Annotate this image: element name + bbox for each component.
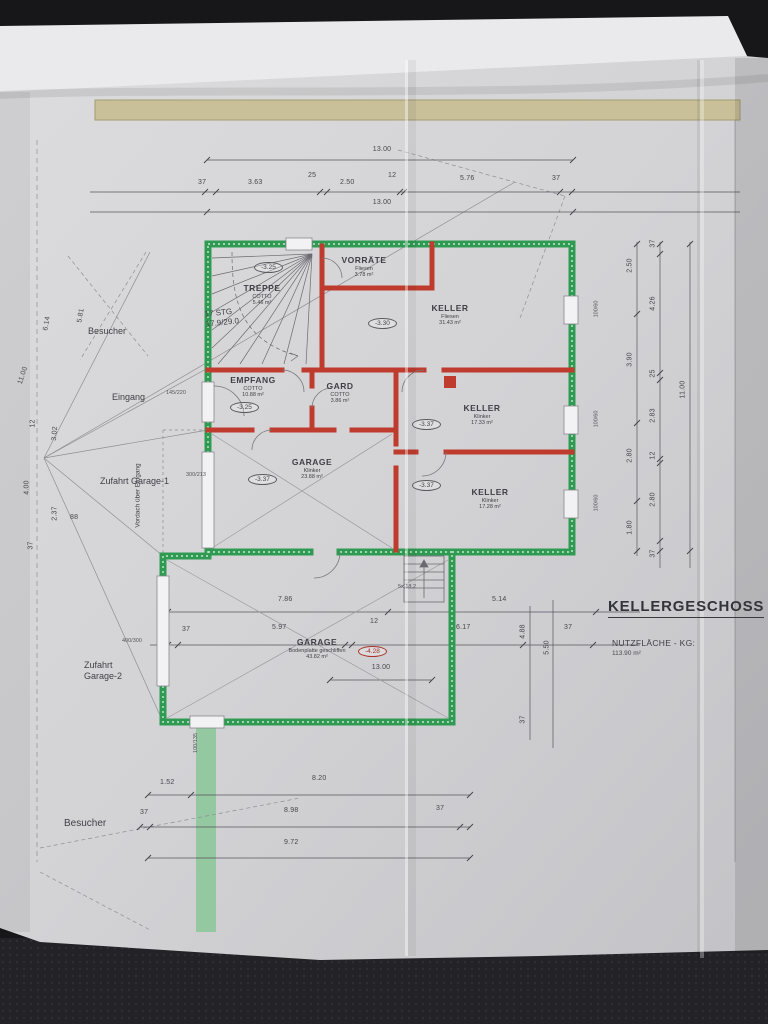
drawing-title: KELLERGESCHOSS	[608, 598, 764, 618]
dim-right-chain: 2.83	[650, 399, 657, 433]
dim-right-inner: 2.80	[627, 439, 634, 473]
level-badge: -3.30	[368, 318, 397, 329]
dim-right-chain: 37	[650, 227, 657, 261]
dim-left-chain: 2.37	[52, 497, 59, 531]
room-gard: GARD COTTO 3.86 m²	[305, 382, 375, 404]
room-vorraete: VORRÄTE Fliesen 3.78 m²	[324, 256, 404, 278]
exterior-steps-note: 5x 18.2	[398, 584, 416, 590]
footpath-strip	[196, 726, 216, 932]
dim-garage-upper: 7.86	[278, 596, 292, 603]
dim-right-chain: 37	[650, 537, 657, 571]
site-label-eingang: Eingang	[112, 392, 145, 402]
room-garage-lower: GARAGE Bodenplatte geschliffen 43.82 m²	[262, 638, 372, 660]
dim-right-inner: 3.90	[627, 343, 634, 377]
usable-area-value: 113.90 m²	[612, 650, 641, 657]
dim-top-seg: 25	[308, 172, 316, 179]
room-empfang: EMPFANG COTTO 10.88 m²	[213, 376, 293, 398]
site-label-vordach: Vordach über Eingang	[135, 463, 142, 527]
room-keller-klinker-2: KELLER Klinker 17.28 m²	[450, 488, 530, 510]
site-label-besucher-bottom: Besucher	[64, 818, 106, 829]
dim-left-chain: 12	[30, 407, 37, 441]
window-size: 100/60	[593, 411, 599, 428]
room-garage-upper: GARAGE Klinker 23.88 m²	[272, 458, 352, 480]
dim-garage-lower: 37	[182, 626, 190, 633]
dim-top-total2: 13.00	[352, 199, 412, 206]
dim-garage-vertical: 5.50	[544, 631, 551, 665]
dim-bottom-row2: 8.98	[284, 807, 298, 814]
dim-left-chain: 4.00	[24, 471, 31, 505]
dim-garage-upper: 5.14	[492, 596, 506, 603]
level-badge: -3.25	[254, 262, 283, 273]
level-badge: -3.37	[412, 419, 441, 430]
dim-garage-side: 37	[564, 624, 572, 631]
dim-right-overall: 11.00	[680, 373, 687, 407]
room-keller-fliesen: KELLER Fliesen 31.43 m²	[410, 304, 490, 326]
dim-top-seg: 5.76	[460, 175, 474, 182]
usable-area-label: NUTZFLÄCHE - KG:	[612, 638, 695, 648]
dim-garage-lower: 5.97	[272, 624, 286, 631]
site-label-besucher-top: Besucher	[88, 326, 126, 336]
level-badge: -3.25	[230, 402, 259, 413]
dim-right-chain: 12	[650, 439, 657, 473]
level-badge: -3.37	[412, 480, 441, 491]
dim-bottom-row1: 8.20	[312, 775, 326, 782]
dim-right-inner: 1.80	[627, 511, 634, 545]
site-label-zufahrt-garage-2: Zufahrt Garage-2	[84, 660, 142, 682]
opening-size-entrance: 145/220	[166, 390, 186, 396]
dim-garage-lower: 6.17	[456, 624, 470, 631]
dim-garage-below: 37	[520, 703, 527, 737]
dim-bottom-row2: 37	[436, 805, 444, 812]
chimney-block	[444, 376, 456, 388]
dim-bottom-row3: 9.72	[284, 839, 298, 846]
dim-garage-vertical: 4.88	[520, 615, 527, 649]
dim-right-chain: 25	[650, 357, 657, 391]
dim-top-seg: 37	[552, 175, 560, 182]
dim-top-total: 13.00	[352, 146, 412, 153]
dim-top-seg: 37	[198, 179, 206, 186]
photo-of-floorplan: 13.00 37 3.63 25 2.50 12 5.76 37 13.00 2…	[0, 0, 768, 1024]
dim-right-chain: 2.80	[650, 483, 657, 517]
opening-size-garage1: 300/213	[186, 472, 206, 478]
dim-garage-total: 13.00	[352, 664, 410, 671]
dim-top-seg: 12	[388, 172, 396, 179]
level-badge: -3.37	[248, 474, 277, 485]
dim-top-seg: 2.50	[340, 179, 354, 186]
opening-size-garage2: 400/300	[122, 638, 142, 644]
window-size: 100/60	[593, 495, 599, 512]
window-size: 100/60	[593, 301, 599, 318]
dim-left-chain: 37	[28, 529, 35, 563]
dim-top-seg: 3.63	[248, 179, 262, 186]
window-size-bottom: 100/135	[193, 733, 199, 753]
dim-right-chain: 4.26	[650, 287, 657, 321]
dim-left-offset: 88	[70, 514, 78, 521]
dim-right-inner: 2.50	[627, 249, 634, 283]
dim-garage-lower: 12	[370, 618, 378, 625]
room-keller-klinker-1: KELLER Klinker 17.33 m²	[442, 404, 522, 426]
dim-bottom-row1: 1.52	[160, 779, 174, 786]
dim-bottom-row2: 37	[140, 809, 148, 816]
site-boundary-band	[95, 100, 740, 120]
level-badge-garage: -4.28	[358, 646, 387, 657]
